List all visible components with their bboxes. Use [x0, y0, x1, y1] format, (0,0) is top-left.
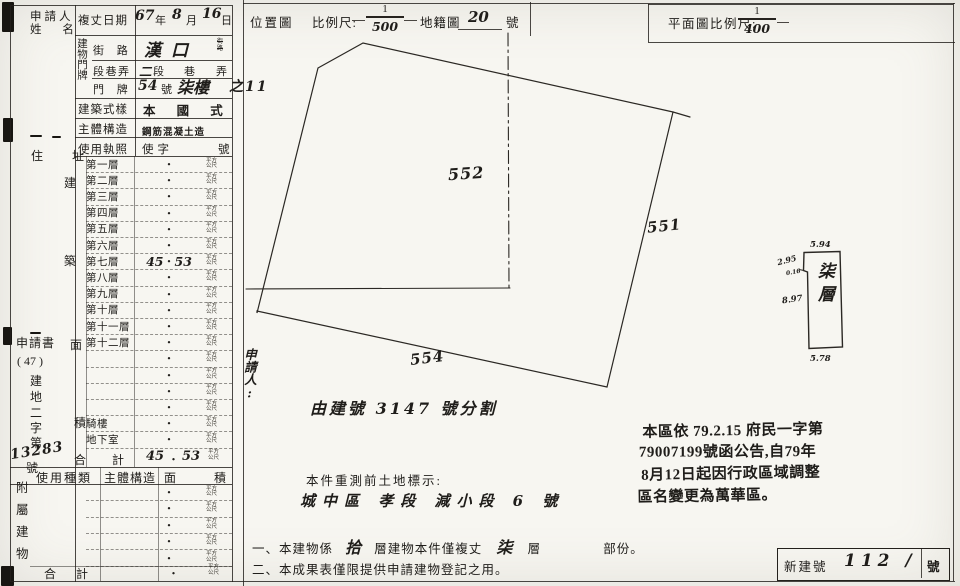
- footnote-2: 二、本成果表僅限提供申請建物登記之用。: [252, 559, 509, 578]
- new-building-no-value: 112 /: [844, 551, 917, 571]
- scanned-building-survey-form: 申請人 姓 名 住 址 複丈日期 67 年 8 月 16 日 建物門牌 街 路 …: [0, 0, 960, 586]
- presurvey-label: 本件重測前土地標示:: [306, 470, 442, 489]
- new-building-no-divider: [921, 549, 922, 578]
- division-note: 由建號 3147 號分割: [310, 395, 498, 419]
- plan-dim-top: 5.94: [810, 240, 831, 250]
- parcel-label-551: 551: [646, 215, 682, 236]
- parcel-outer-boundary: [257, 43, 673, 387]
- stamp-line: 本區依 79.2.15 府民一字第: [642, 417, 954, 444]
- new-building-no-unit: 號: [927, 556, 940, 575]
- parcel-inner-boundary: [246, 288, 510, 289]
- footnote-1-end: 部份。: [603, 542, 644, 556]
- boundary-tick: [673, 112, 690, 117]
- footnote-1-pre: 一、本建物係: [252, 542, 333, 556]
- plan-dim-bottom: 5.78: [810, 354, 831, 364]
- footnote-1: 一、本建物係 拾 層建物本件僅複丈 柒 層 部份。: [252, 534, 644, 558]
- footnote-1-floor-unit: 層: [528, 542, 542, 556]
- new-building-no-label: 新建號: [784, 556, 828, 575]
- district-change-stamp: 本區依 79.2.15 府民一字第 79007199號函公告,自79年 8月12…: [642, 417, 955, 508]
- presurvey-value: 城中區 孝段 減小段 6 號: [300, 490, 564, 511]
- footnote-1-hand-floors: 拾: [345, 538, 362, 557]
- survey-dashdot-line: [508, 33, 509, 289]
- new-building-no-box: 新建號 112 / 號: [777, 548, 950, 581]
- parcel-label-552: 552: [447, 163, 485, 184]
- footnote-1-mid: 層建物本件僅複丈: [374, 542, 482, 556]
- plan-floor-label: 柒層: [812, 262, 836, 332]
- footnote-1-hand-floor: 柒: [496, 538, 513, 557]
- map-applicant-note: 申請人:: [242, 348, 256, 420]
